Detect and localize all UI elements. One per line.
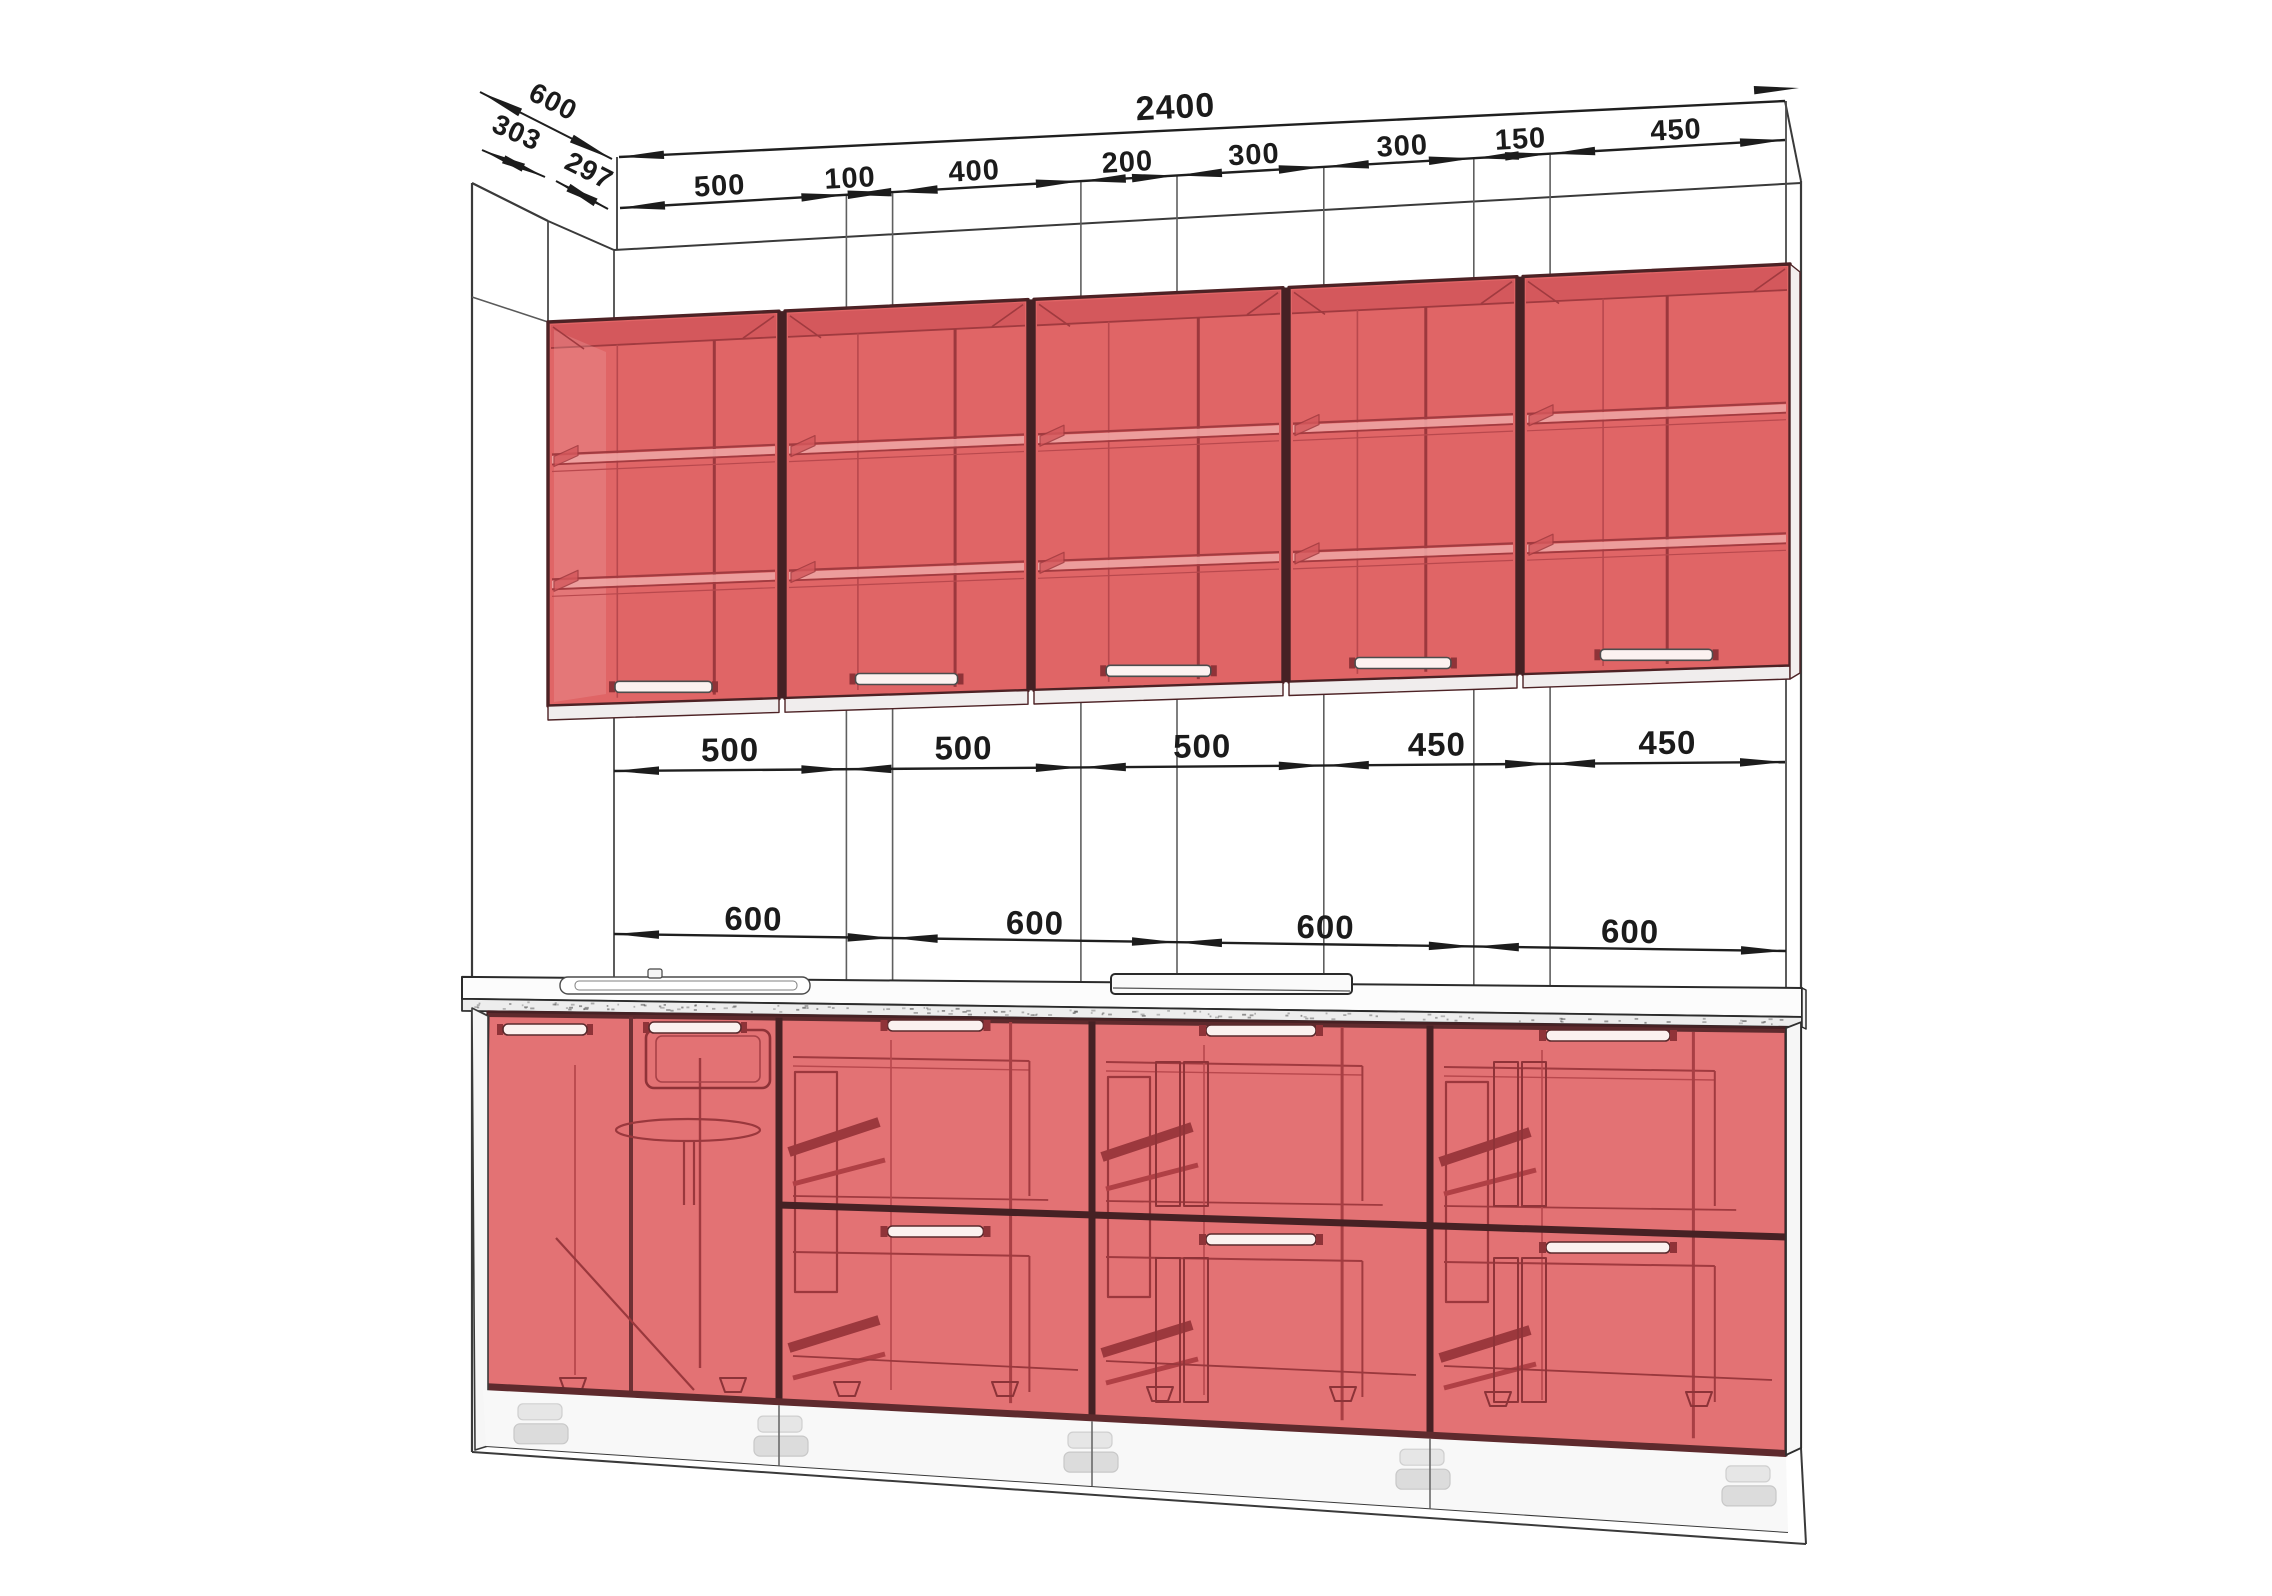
svg-text:600: 600 <box>1296 908 1355 946</box>
svg-text:500: 500 <box>934 729 992 767</box>
svg-text:100: 100 <box>823 161 876 196</box>
svg-text:450: 450 <box>1408 725 1466 763</box>
svg-text:400: 400 <box>948 154 1001 189</box>
svg-text:450: 450 <box>1638 724 1696 762</box>
svg-text:300: 300 <box>1376 129 1429 164</box>
svg-text:600: 600 <box>724 900 783 938</box>
svg-text:500: 500 <box>693 169 746 204</box>
svg-text:600: 600 <box>1601 912 1660 950</box>
svg-text:500: 500 <box>1173 727 1231 765</box>
svg-text:600: 600 <box>1006 904 1065 942</box>
svg-text:2400: 2400 <box>1135 86 1217 128</box>
svg-text:150: 150 <box>1494 122 1547 157</box>
svg-text:300: 300 <box>1227 138 1280 173</box>
svg-text:500: 500 <box>701 731 759 769</box>
svg-text:200: 200 <box>1101 145 1154 180</box>
svg-text:450: 450 <box>1649 113 1702 148</box>
